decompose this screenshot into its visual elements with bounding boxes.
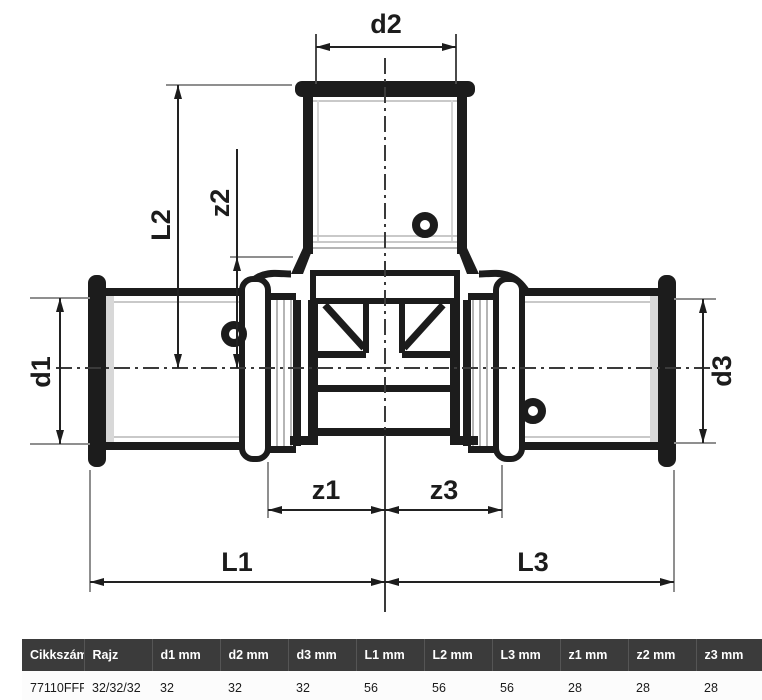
- col-header-L1: L1 mm: [356, 639, 424, 671]
- dimension-d3: d3: [674, 299, 737, 443]
- col-header-cikkszam: Cikkszám: [22, 639, 84, 671]
- right-port-hole: [524, 402, 542, 420]
- dimension-label-L3: L3: [517, 547, 549, 577]
- dimension-L1: L1: [90, 470, 385, 592]
- cell-cikkszam: 77110FFF: [22, 671, 84, 700]
- dimension-label-d1: d1: [26, 356, 56, 388]
- technical-drawing-page: d2 L2 z2 d1: [0, 0, 762, 700]
- cell-d2: 32: [220, 671, 288, 700]
- dimension-label-z1: z1: [312, 475, 341, 505]
- top-port-hole: [416, 216, 434, 234]
- col-header-z2: z2 mm: [628, 639, 696, 671]
- right-port: [463, 275, 676, 467]
- col-header-L3: L3 mm: [492, 639, 560, 671]
- cell-z2: 28: [628, 671, 696, 700]
- col-header-L2: L2 mm: [424, 639, 492, 671]
- dimension-d1: d1: [26, 298, 90, 444]
- table-row: 77110FFF 32/32/32 32 32 32 56 56 56 28 2…: [22, 671, 762, 700]
- cell-z1: 28: [560, 671, 628, 700]
- left-port: [88, 275, 301, 467]
- cell-z3: 28: [696, 671, 762, 700]
- col-header-d2: d2 mm: [220, 639, 288, 671]
- col-header-d1: d1 mm: [152, 639, 220, 671]
- cell-L2: 56: [424, 671, 492, 700]
- centerlines: [56, 58, 718, 612]
- dimension-label-d3: d3: [707, 355, 737, 387]
- left-port-flange: [88, 275, 106, 467]
- dimension-z1: z1: [268, 462, 385, 518]
- col-header-z3: z3 mm: [696, 639, 762, 671]
- dimension-label-L1: L1: [221, 547, 253, 577]
- dimension-label-L2: L2: [146, 209, 176, 241]
- col-header-d3: d3 mm: [288, 639, 356, 671]
- cell-L1: 56: [356, 671, 424, 700]
- dimension-L3: L3: [385, 470, 674, 592]
- right-port-flange: [658, 275, 676, 467]
- left-port-hole: [225, 325, 243, 343]
- cell-rajz: 32/32/32: [84, 671, 152, 700]
- dimension-label-z2: z2: [205, 189, 235, 218]
- top-port-skirt-right: [457, 248, 479, 274]
- cell-L3: 56: [492, 671, 560, 700]
- tee-fitting-drawing: d2 L2 z2 d1: [0, 0, 762, 628]
- dimension-label-z3: z3: [430, 475, 459, 505]
- col-header-rajz: Rajz: [84, 639, 152, 671]
- cell-d3: 32: [288, 671, 356, 700]
- dimension-label-d2: d2: [370, 9, 402, 39]
- table-header-row: Cikkszám Rajz d1 mm d2 mm d3 mm L1 mm L2…: [22, 639, 762, 671]
- top-port-skirt-left: [291, 248, 313, 274]
- col-header-z1: z1 mm: [560, 639, 628, 671]
- spec-table: Cikkszám Rajz d1 mm d2 mm d3 mm L1 mm L2…: [22, 639, 762, 700]
- dimension-z3: z3: [385, 465, 502, 518]
- cell-d1: 32: [152, 671, 220, 700]
